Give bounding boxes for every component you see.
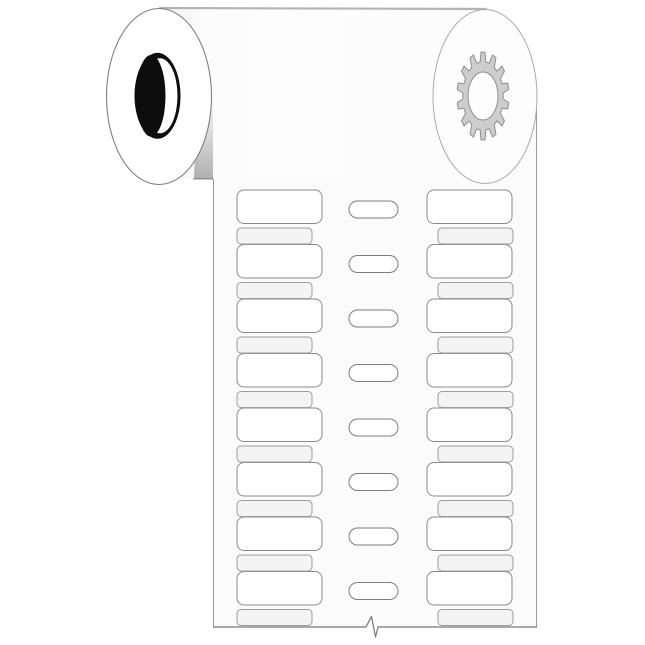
label — [427, 354, 512, 388]
label — [237, 408, 322, 442]
label — [427, 572, 512, 606]
roll-top-edge — [160, 8, 486, 9]
label — [427, 463, 512, 497]
label-spacer — [237, 337, 312, 353]
label-spacer — [237, 446, 312, 462]
labels-right-column — [427, 190, 513, 626]
feed-slot — [349, 201, 398, 218]
label — [237, 354, 322, 388]
label-spacer — [237, 501, 312, 517]
label — [427, 517, 512, 551]
label — [237, 299, 322, 333]
label — [237, 517, 322, 551]
label — [427, 408, 512, 442]
sprocket-gear-hole — [468, 72, 498, 120]
label — [427, 299, 512, 333]
label-spacer — [438, 555, 513, 571]
label-roll-illustration — [0, 0, 645, 645]
label-spacer — [237, 283, 312, 299]
feed-slot — [349, 256, 398, 273]
labels-left-column — [237, 190, 322, 626]
label-spacer — [438, 446, 513, 462]
feed-slot — [349, 419, 398, 436]
label — [427, 245, 512, 279]
core-icon — [135, 53, 181, 139]
feed-slot — [349, 310, 398, 327]
left-disc — [107, 9, 212, 185]
label-spacer — [438, 283, 513, 299]
label — [237, 245, 322, 279]
core-bore — [137, 55, 166, 137]
feed-slot — [349, 528, 398, 545]
label-spacer — [438, 392, 513, 408]
label-spacer — [438, 228, 513, 244]
label — [237, 463, 322, 497]
feed-slot — [349, 474, 398, 491]
label-spacer — [438, 501, 513, 517]
roll — [107, 7, 538, 185]
label — [237, 190, 322, 224]
right-disc — [433, 10, 537, 184]
label — [427, 190, 512, 224]
label-spacer — [438, 610, 513, 626]
label-spacer — [438, 337, 513, 353]
label-spacer — [237, 610, 312, 626]
label-roll-product-image — [0, 0, 645, 645]
feed-slot — [349, 583, 398, 600]
label-spacer — [237, 555, 312, 571]
label-spacer — [237, 392, 312, 408]
label-spacer — [237, 228, 312, 244]
feed-slot — [349, 365, 398, 382]
label — [237, 572, 322, 606]
